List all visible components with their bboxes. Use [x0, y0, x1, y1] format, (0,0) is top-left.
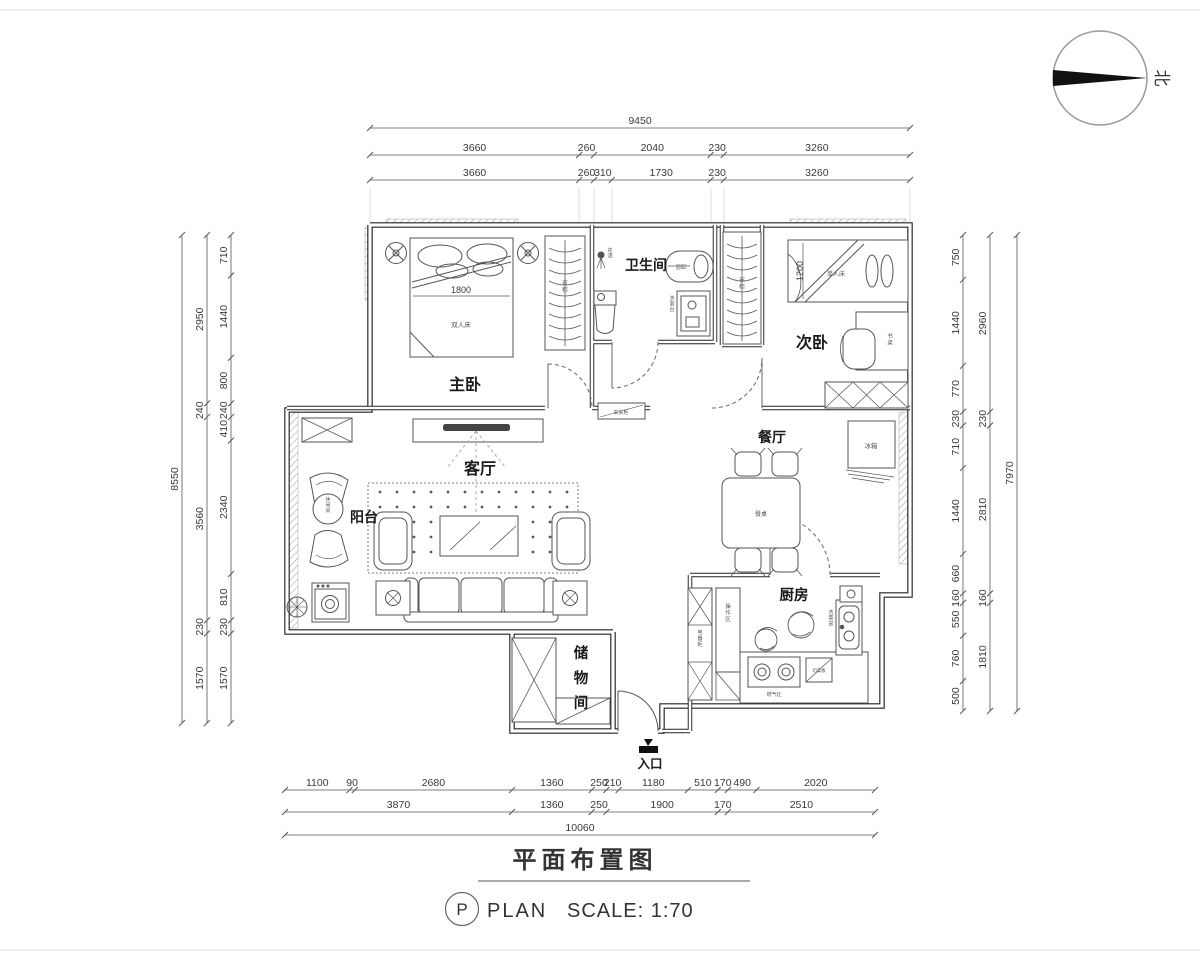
room-kitchen: 电器柜 操作区 燃气灶 切菜板 洗菜盆 厨房	[688, 586, 868, 703]
cutting-board: 切菜板	[806, 658, 832, 682]
plant-icon	[287, 597, 307, 617]
coffee-table	[440, 516, 518, 556]
svg-text:3560: 3560	[194, 507, 206, 531]
title-block: 平面布置图 P PLAN SCALE: 1:70	[446, 846, 751, 926]
svg-text:230: 230	[708, 167, 726, 179]
dining-label: 餐厅	[757, 429, 786, 445]
svg-text:1570: 1570	[194, 666, 206, 690]
svg-text:2950: 2950	[194, 307, 206, 331]
appliance-cabinet-label: 电器柜	[697, 629, 702, 648]
svg-text:230: 230	[194, 618, 206, 636]
floorplan-page: 北 1800 双人床	[0, 0, 1200, 960]
dining-chair	[731, 448, 765, 476]
entrance: 入口	[618, 691, 663, 771]
bathtub-label: 浴缸	[675, 263, 687, 271]
svg-text:260: 260	[578, 167, 596, 179]
armchair	[552, 512, 590, 570]
svg-text:160: 160	[950, 589, 962, 607]
svg-text:310: 310	[594, 167, 612, 179]
single-bed-label: 单人床	[827, 270, 845, 278]
svg-text:800: 800	[218, 372, 230, 390]
entry-cabinet-label: 玄关柜	[613, 409, 628, 416]
svg-text:3870: 3870	[387, 799, 411, 811]
room-storage: 储物间	[512, 638, 610, 724]
fridge-label: 冰箱	[865, 441, 879, 450]
plant-icon	[386, 243, 407, 264]
svg-text:3260: 3260	[805, 142, 829, 154]
stove-label: 燃气灶	[766, 691, 781, 698]
second-bed-width: 1200	[795, 261, 805, 281]
svg-text:230: 230	[708, 142, 726, 154]
title-en: PLAN	[487, 900, 547, 922]
room-dining: 餐桌 冰箱 餐厅	[722, 421, 895, 576]
cook-figure-icon	[755, 612, 814, 651]
side-table-lamp	[553, 581, 587, 615]
room-second-bedroom: 1200 单人床 书桌 次卧	[788, 240, 908, 408]
dining-chair	[768, 448, 802, 476]
svg-text:260: 260	[578, 142, 596, 154]
svg-text:7970: 7970	[1004, 461, 1016, 485]
svg-text:90: 90	[346, 777, 358, 789]
desk-label: 书桌	[887, 332, 893, 347]
svg-text:250: 250	[590, 799, 608, 811]
washing-machine	[312, 583, 349, 622]
svg-text:510: 510	[694, 777, 712, 789]
svg-text:160: 160	[977, 589, 989, 607]
svg-text:1810: 1810	[977, 645, 989, 669]
sofa	[404, 578, 558, 622]
svg-text:240: 240	[218, 401, 230, 419]
svg-text:1360: 1360	[540, 799, 564, 811]
svg-text:3660: 3660	[463, 167, 487, 179]
workzone-label: 操作区	[725, 602, 731, 623]
kitchen-label: 厨房	[780, 586, 809, 604]
svg-text:710: 710	[950, 438, 962, 456]
svg-text:810: 810	[218, 588, 230, 606]
dining-chair	[731, 548, 765, 576]
svg-text:2020: 2020	[804, 777, 828, 789]
title-scale: SCALE: 1:70	[567, 900, 694, 922]
svg-text:2960: 2960	[977, 312, 989, 336]
witness-lines	[370, 188, 910, 222]
room-master-bedroom: 1800 双人床 衣柜 主卧	[386, 236, 586, 394]
svg-text:2680: 2680	[422, 777, 446, 789]
svg-text:230: 230	[218, 618, 230, 636]
board-label: 切菜板	[812, 667, 826, 674]
svg-text:410: 410	[218, 420, 230, 438]
sink-label: 洗菜盆	[828, 609, 833, 627]
shower-label: 花洒	[607, 247, 612, 260]
master-bed-width: 1800	[451, 285, 471, 295]
double-bed-label: 双人床	[451, 320, 471, 329]
svg-text:500: 500	[950, 687, 962, 705]
plant-icon	[518, 243, 539, 264]
fridge: 冰箱	[846, 421, 895, 483]
svg-text:230: 230	[950, 410, 962, 428]
armchair	[374, 512, 412, 570]
svg-text:1440: 1440	[218, 305, 230, 329]
svg-text:3660: 3660	[463, 142, 487, 154]
balcony-label: 阳台	[350, 509, 378, 525]
north-label: 北	[1152, 70, 1171, 87]
tv-icon	[443, 424, 510, 431]
svg-text:1180: 1180	[642, 777, 665, 789]
floorplan-canvas: 北 1800 双人床	[0, 0, 1200, 960]
svg-text:1730: 1730	[649, 167, 673, 179]
svg-text:8550: 8550	[169, 467, 181, 491]
dining-chair	[768, 548, 802, 576]
svg-text:710: 710	[218, 246, 230, 264]
svg-text:2040: 2040	[641, 142, 665, 154]
svg-text:230: 230	[977, 410, 989, 428]
svg-text:170: 170	[714, 799, 732, 811]
bathroom-label: 卫生间	[625, 257, 667, 273]
entrance-symbol-icon	[639, 739, 658, 753]
svg-text:9450: 9450	[628, 115, 652, 127]
svg-text:750: 750	[950, 248, 962, 266]
svg-text:210: 210	[604, 777, 622, 789]
svg-text:550: 550	[950, 610, 962, 628]
vanity-label: 洗漱台	[669, 295, 674, 313]
kitchen-sink: 洗菜盆	[828, 600, 862, 655]
svg-text:770: 770	[950, 380, 962, 398]
living-label: 客厅	[464, 459, 496, 478]
north-arrow: 北	[1053, 31, 1171, 125]
svg-text:760: 760	[950, 650, 962, 668]
title-badge: P	[456, 900, 467, 919]
svg-text:2810: 2810	[977, 498, 989, 522]
svg-text:1100: 1100	[306, 777, 329, 789]
wardrobe-label: 衣柜	[562, 279, 568, 294]
svg-text:170: 170	[714, 777, 732, 789]
svg-text:1570: 1570	[218, 666, 230, 690]
svg-text:10060: 10060	[565, 822, 594, 834]
svg-text:660: 660	[950, 565, 962, 583]
second-bedroom-label: 次卧	[796, 333, 828, 352]
room-balcony: 休闲桌 阳台	[287, 473, 378, 622]
master-bedroom-label: 主卧	[449, 375, 481, 394]
title-zh: 平面布置图	[513, 846, 658, 874]
svg-text:1440: 1440	[950, 499, 962, 523]
svg-text:1360: 1360	[540, 777, 564, 789]
leisure-table-label: 休闲桌	[325, 496, 330, 514]
storage-label: 储物间	[574, 644, 589, 712]
svg-text:240: 240	[194, 401, 206, 419]
hall-closet: 衣柜	[723, 232, 761, 344]
side-table-lamp	[376, 581, 410, 615]
entrance-label: 入口	[637, 757, 662, 771]
dining-table-label: 餐桌	[755, 510, 767, 518]
svg-text:1440: 1440	[950, 311, 962, 335]
svg-text:3260: 3260	[805, 167, 829, 179]
svg-text:490: 490	[733, 777, 751, 789]
closet-label: 衣柜	[739, 276, 745, 291]
svg-text:2510: 2510	[790, 799, 814, 811]
svg-text:2340: 2340	[218, 495, 230, 519]
room-bathroom: 花洒 浴缸 洗漱台 卫生间	[594, 247, 713, 336]
svg-text:1900: 1900	[650, 799, 674, 811]
